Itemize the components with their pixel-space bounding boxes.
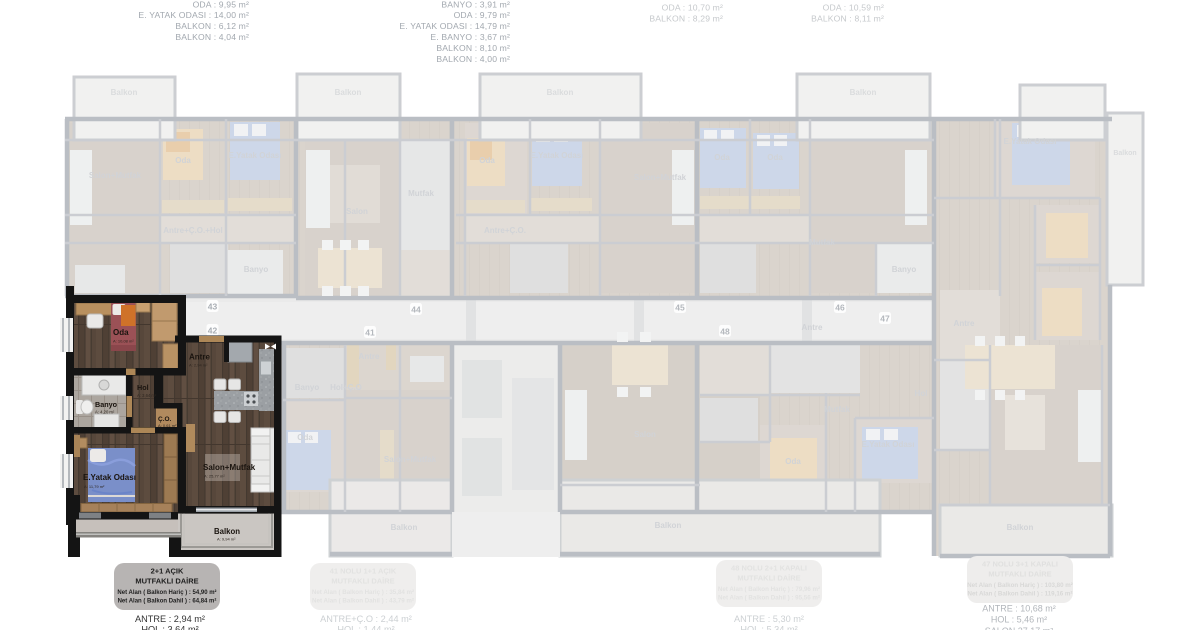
svg-text:A: 9,94 m²: A: 9,94 m² xyxy=(217,537,236,542)
svg-text:Balkon: Balkon xyxy=(214,527,240,536)
svg-text:E.Yatak Odası: E.Yatak Odası xyxy=(83,473,136,482)
svg-text:BANYO : 3,91 m²: BANYO : 3,91 m² xyxy=(441,0,510,9)
svg-text:48 NOLU 2+1 KAPALI: 48 NOLU 2+1 KAPALI xyxy=(731,564,807,573)
svg-text:BALKON : 8,10 m²: BALKON : 8,10 m² xyxy=(436,43,510,53)
svg-text:41: 41 xyxy=(365,328,375,338)
svg-text:A: 10,08 m²: A: 10,08 m² xyxy=(113,339,134,344)
svg-text:MUTFAKLI DAİRE: MUTFAKLI DAİRE xyxy=(988,570,1051,579)
svg-text:Ç.O.: Ç.O. xyxy=(158,416,172,423)
svg-text:MUTFAKLI DAİRE: MUTFAKLI DAİRE xyxy=(331,577,394,586)
svg-text:BALKON : 8,11 m²: BALKON : 8,11 m² xyxy=(811,14,884,24)
svg-text:Antre: Antre xyxy=(189,353,210,362)
svg-text:Net Alan ( Balkon Dahil ) : 95: Net Alan ( Balkon Dahil ) : 95,56 m² xyxy=(718,595,820,602)
svg-text:HOL : 3,64 m²: HOL : 3,64 m² xyxy=(141,625,198,630)
svg-text:Net Alan ( Balkon Hariç ) : 79: Net Alan ( Balkon Hariç ) : 79,96 m² xyxy=(718,586,820,593)
svg-text:Banyo: Banyo xyxy=(95,400,118,409)
svg-text:44: 44 xyxy=(411,305,421,315)
svg-text:A: 11,79 m²: A: 11,79 m² xyxy=(84,484,105,489)
svg-text:46: 46 xyxy=(835,303,845,313)
svg-text:Net Alan ( Balkon Hariç ) : 35: Net Alan ( Balkon Hariç ) : 35,84 m² xyxy=(312,589,414,596)
svg-text:ANTRE+Ç.O : 2,44 m²: ANTRE+Ç.O : 2,44 m² xyxy=(320,614,412,624)
svg-text:HOL : 5,34 m²: HOL : 5,34 m² xyxy=(740,625,797,630)
svg-text:ANTRE : 5,30 m²: ANTRE : 5,30 m² xyxy=(734,614,804,624)
svg-text:A: 0,61 m²: A: 0,61 m² xyxy=(158,423,177,428)
svg-text:Net Alan ( Balkon Dahil ) : 43: Net Alan ( Balkon Dahil ) : 43,79 m² xyxy=(312,598,414,605)
svg-text:BALKON : 4,00 m²: BALKON : 4,00 m² xyxy=(436,54,510,64)
svg-text:BALKON : 8,29 m²: BALKON : 8,29 m² xyxy=(649,14,723,24)
svg-text:E. BANYO : 3,67 m²: E. BANYO : 3,67 m² xyxy=(430,32,510,42)
svg-text:Net Alan ( Balkon Dahil ) : 11: Net Alan ( Balkon Dahil ) : 119,16 m² xyxy=(968,591,1073,598)
svg-text:Net Alan ( Balkon Hariç ) : 54: Net Alan ( Balkon Hariç ) : 54,90 m² xyxy=(117,589,216,596)
svg-text:E. YATAK ODASI : 14,00 m²: E. YATAK ODASI : 14,00 m² xyxy=(138,10,249,20)
svg-text:41 NOLU 1+1 AÇIK: 41 NOLU 1+1 AÇIK xyxy=(330,567,397,576)
svg-text:MUTFAKLI DAİRE: MUTFAKLI DAİRE xyxy=(737,574,800,583)
svg-text:Hol: Hol xyxy=(137,383,149,392)
svg-text:2+1 AÇIK: 2+1 AÇIK xyxy=(151,567,184,576)
svg-text:47 NOLU 3+1 KAPALI: 47 NOLU 3+1 KAPALI xyxy=(982,560,1058,569)
svg-text:HOL : 5,46 m²: HOL : 5,46 m² xyxy=(991,615,1047,625)
svg-text:47: 47 xyxy=(880,314,890,324)
svg-text:Net Alan ( Balkon Dahil ) : 64: Net Alan ( Balkon Dahil ) : 64,84 m² xyxy=(118,598,217,605)
svg-text:ODA : 9,79 m²: ODA : 9,79 m² xyxy=(454,10,510,20)
svg-text:BALKON : 4,04 m²: BALKON : 4,04 m² xyxy=(175,32,249,42)
svg-text:ANTRE : 10,68 m²: ANTRE : 10,68 m² xyxy=(982,604,1056,614)
svg-text:45: 45 xyxy=(675,303,685,313)
svg-text:A: 4,20 m²: A: 4,20 m² xyxy=(95,410,115,415)
svg-text:ANTRE : 2,94 m²: ANTRE : 2,94 m² xyxy=(135,614,205,624)
svg-text:48: 48 xyxy=(720,327,730,337)
svg-text:42: 42 xyxy=(208,326,218,336)
svg-text:A: 25,77 m²: A: 25,77 m² xyxy=(204,474,225,479)
svg-text:ODA : 9,95 m²: ODA : 9,95 m² xyxy=(193,0,249,9)
svg-text:BALKON : 6,12 m²: BALKON : 6,12 m² xyxy=(175,21,249,31)
svg-text:MUTFAKLI DAİRE: MUTFAKLI DAİRE xyxy=(135,577,198,586)
svg-text:E. YATAK ODASI : 14,79 m²: E. YATAK ODASI : 14,79 m² xyxy=(399,21,510,31)
svg-text:ODA : 10,59 m²: ODA : 10,59 m² xyxy=(823,3,884,13)
svg-text:Oda: Oda xyxy=(113,328,129,337)
svg-text:Net Alan ( Balkon Hariç ) : 10: Net Alan ( Balkon Hariç ) : 103,80 m² xyxy=(967,582,1073,589)
svg-text:SALON 27,17 m²: SALON 27,17 m² xyxy=(985,626,1054,630)
svg-text:HOL : 1,44 m²: HOL : 1,44 m² xyxy=(337,625,394,630)
svg-text:ODA : 10,70 m²: ODA : 10,70 m² xyxy=(662,3,723,13)
svg-text:A: 2,94 m²: A: 2,94 m² xyxy=(189,363,208,368)
svg-text:A: 3,64 m²: A: 3,64 m² xyxy=(137,393,157,398)
svg-text:43: 43 xyxy=(208,302,218,312)
svg-text:Salon+Mutfak: Salon+Mutfak xyxy=(203,463,256,472)
